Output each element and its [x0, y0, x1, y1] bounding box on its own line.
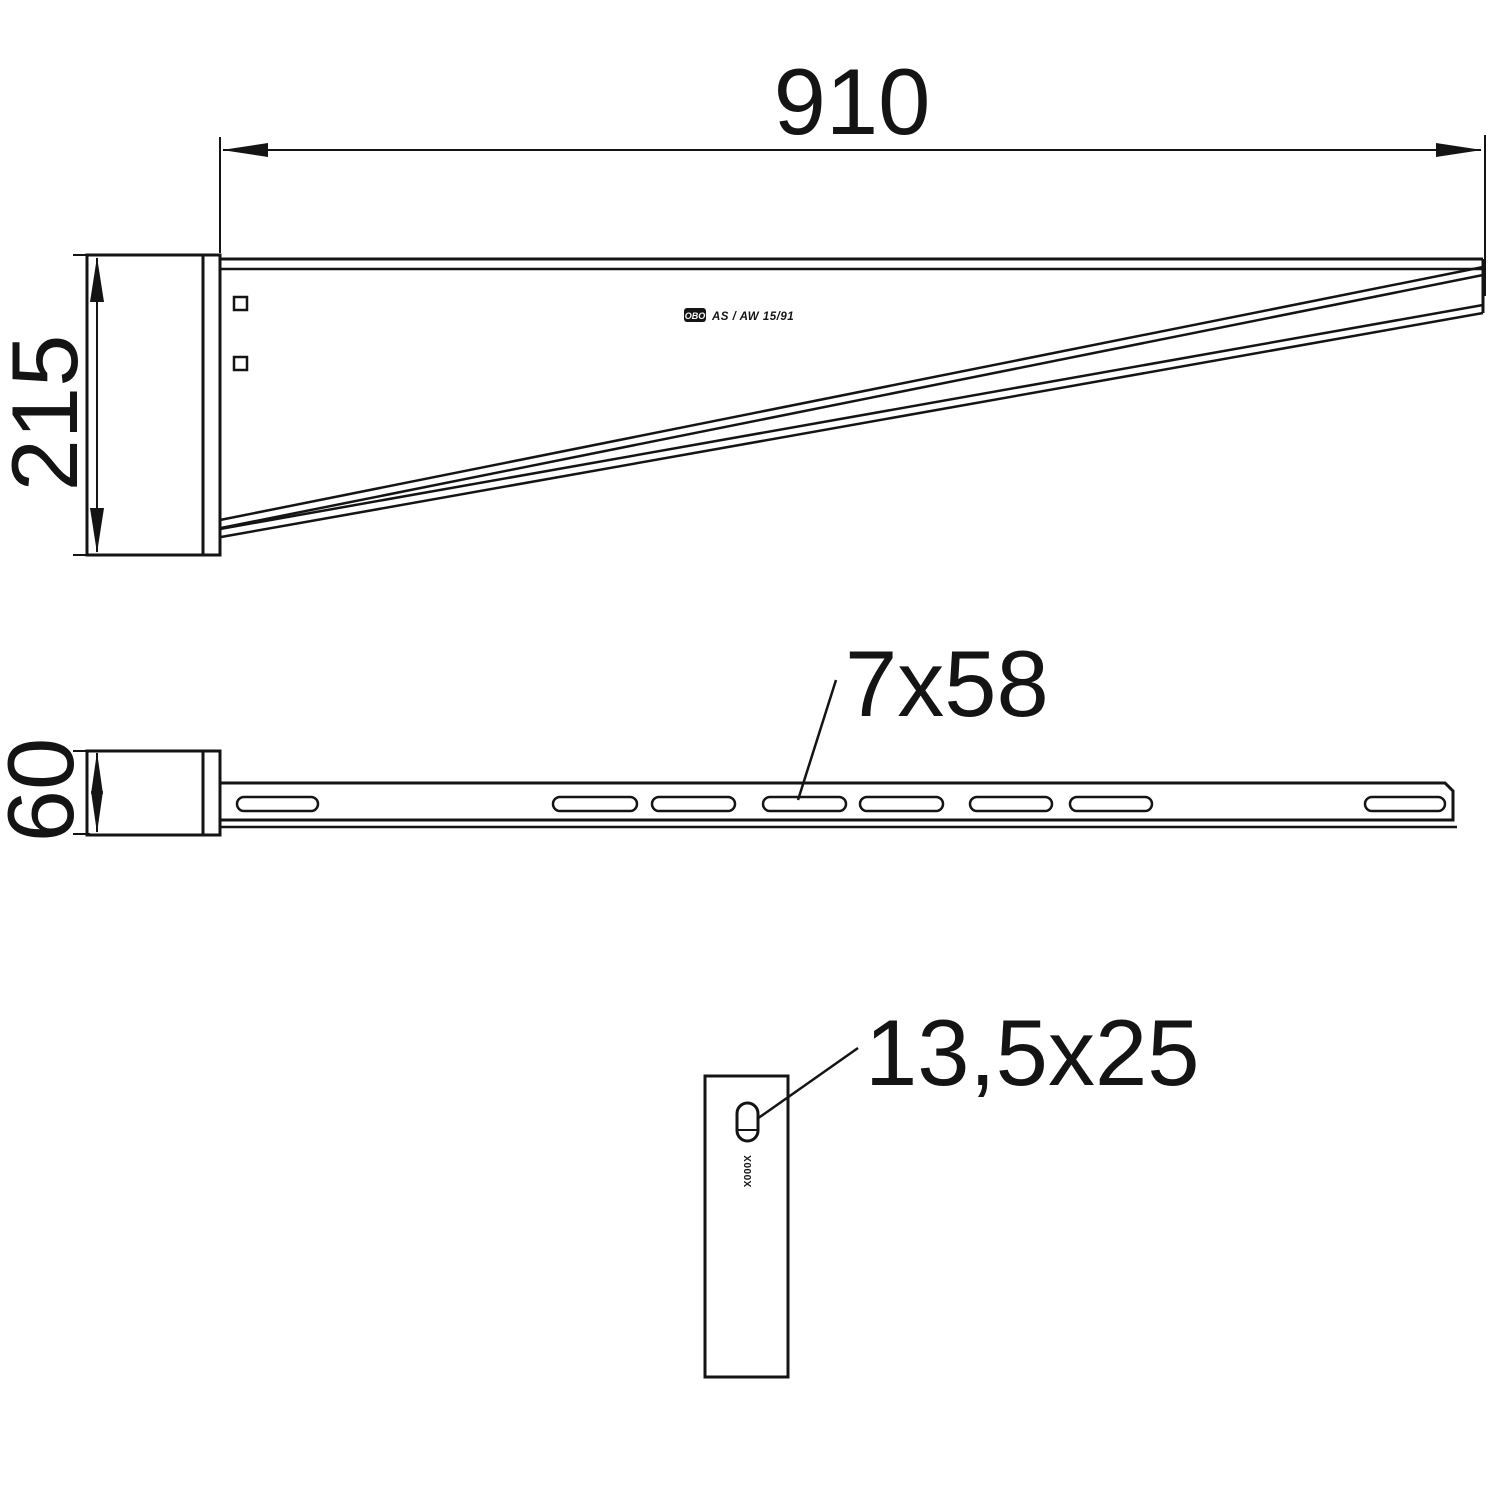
arm-slot-2 [553, 797, 637, 811]
square-hole-upper [234, 297, 247, 310]
bracket-technical-drawing: OBO AS / AW 15/91 910 215 [0, 0, 1500, 1500]
drawing-canvas: OBO AS / AW 15/91 910 215 [0, 0, 1500, 1500]
product-code-text: AS / AW 15/91 [711, 311, 794, 323]
dimension-plate-width: 60 [0, 738, 103, 843]
front-view: X000X 13,5x25 [705, 1000, 1200, 1377]
leader-line-plate-slot [757, 1048, 858, 1119]
callout-text-13-5x25: 13,5x25 [865, 1000, 1200, 1105]
brace-upper-edge-outer [220, 267, 1483, 520]
arm-slot-8 [1365, 797, 1445, 811]
callout-plate-slot: 13,5x25 [757, 1000, 1200, 1119]
dimension-text-215: 215 [0, 335, 97, 492]
part-label: OBO AS / AW 15/91 [684, 308, 794, 323]
wall-plate-edge-side [203, 255, 220, 555]
plan-view: 7x58 [87, 631, 1457, 835]
dimension-text-60: 60 [0, 738, 93, 843]
arm-slot-4 [763, 797, 846, 811]
arm-slot-7 [1070, 797, 1152, 811]
arm-slot-5 [860, 797, 943, 811]
stamp-marking: X000X [743, 1155, 754, 1188]
callout-text-7x58: 7x58 [845, 631, 1049, 736]
arrowhead-left [222, 143, 268, 157]
arm-slot-6 [970, 797, 1052, 811]
wall-plate-plan [87, 751, 203, 835]
arrowhead-down [90, 508, 104, 553]
dimension-text-910: 910 [774, 49, 931, 154]
square-hole-lower [234, 357, 247, 370]
side-elevation-view: OBO AS / AW 15/91 [87, 255, 1483, 555]
callout-arm-slot: 7x58 [798, 631, 1049, 800]
arm-slot-holes [237, 797, 1445, 811]
brace-upper-edge-inner [221, 275, 1483, 528]
wall-plate-front [705, 1076, 788, 1377]
arrowhead-right [1436, 143, 1482, 157]
brace-lower-edge-outer [221, 313, 1483, 537]
arm-slot-1 [237, 797, 318, 811]
plate-slot-hole [737, 1103, 758, 1141]
brand-logo-text: OBO [685, 311, 706, 321]
arrowhead-up [90, 257, 104, 302]
wall-plate-side [87, 255, 203, 555]
arm-plan-outline [220, 783, 1453, 820]
arm-slot-3 [652, 797, 735, 811]
brace-lower-edge-inner [220, 305, 1483, 529]
wall-plate-edge-plan [203, 751, 220, 835]
